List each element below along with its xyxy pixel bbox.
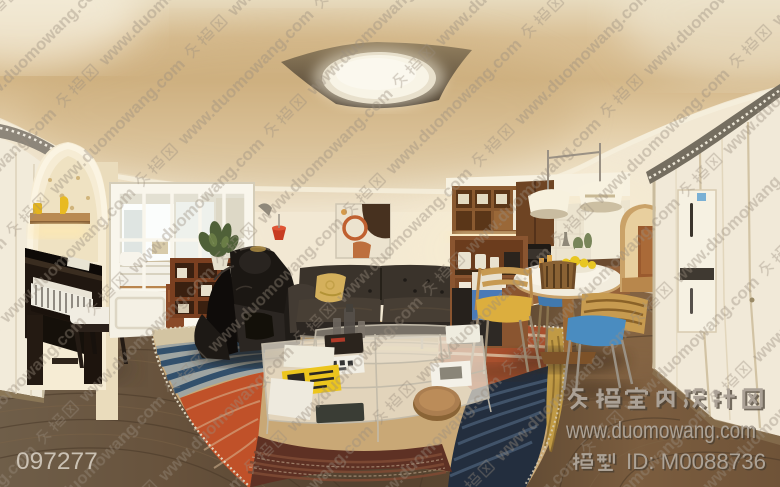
svg-text:097277: 097277 [16,448,98,475]
svg-text:www.duomowang.com: www.duomowang.com [565,417,756,443]
svg-text:ID: M0088736: ID: M0088736 [626,449,766,474]
